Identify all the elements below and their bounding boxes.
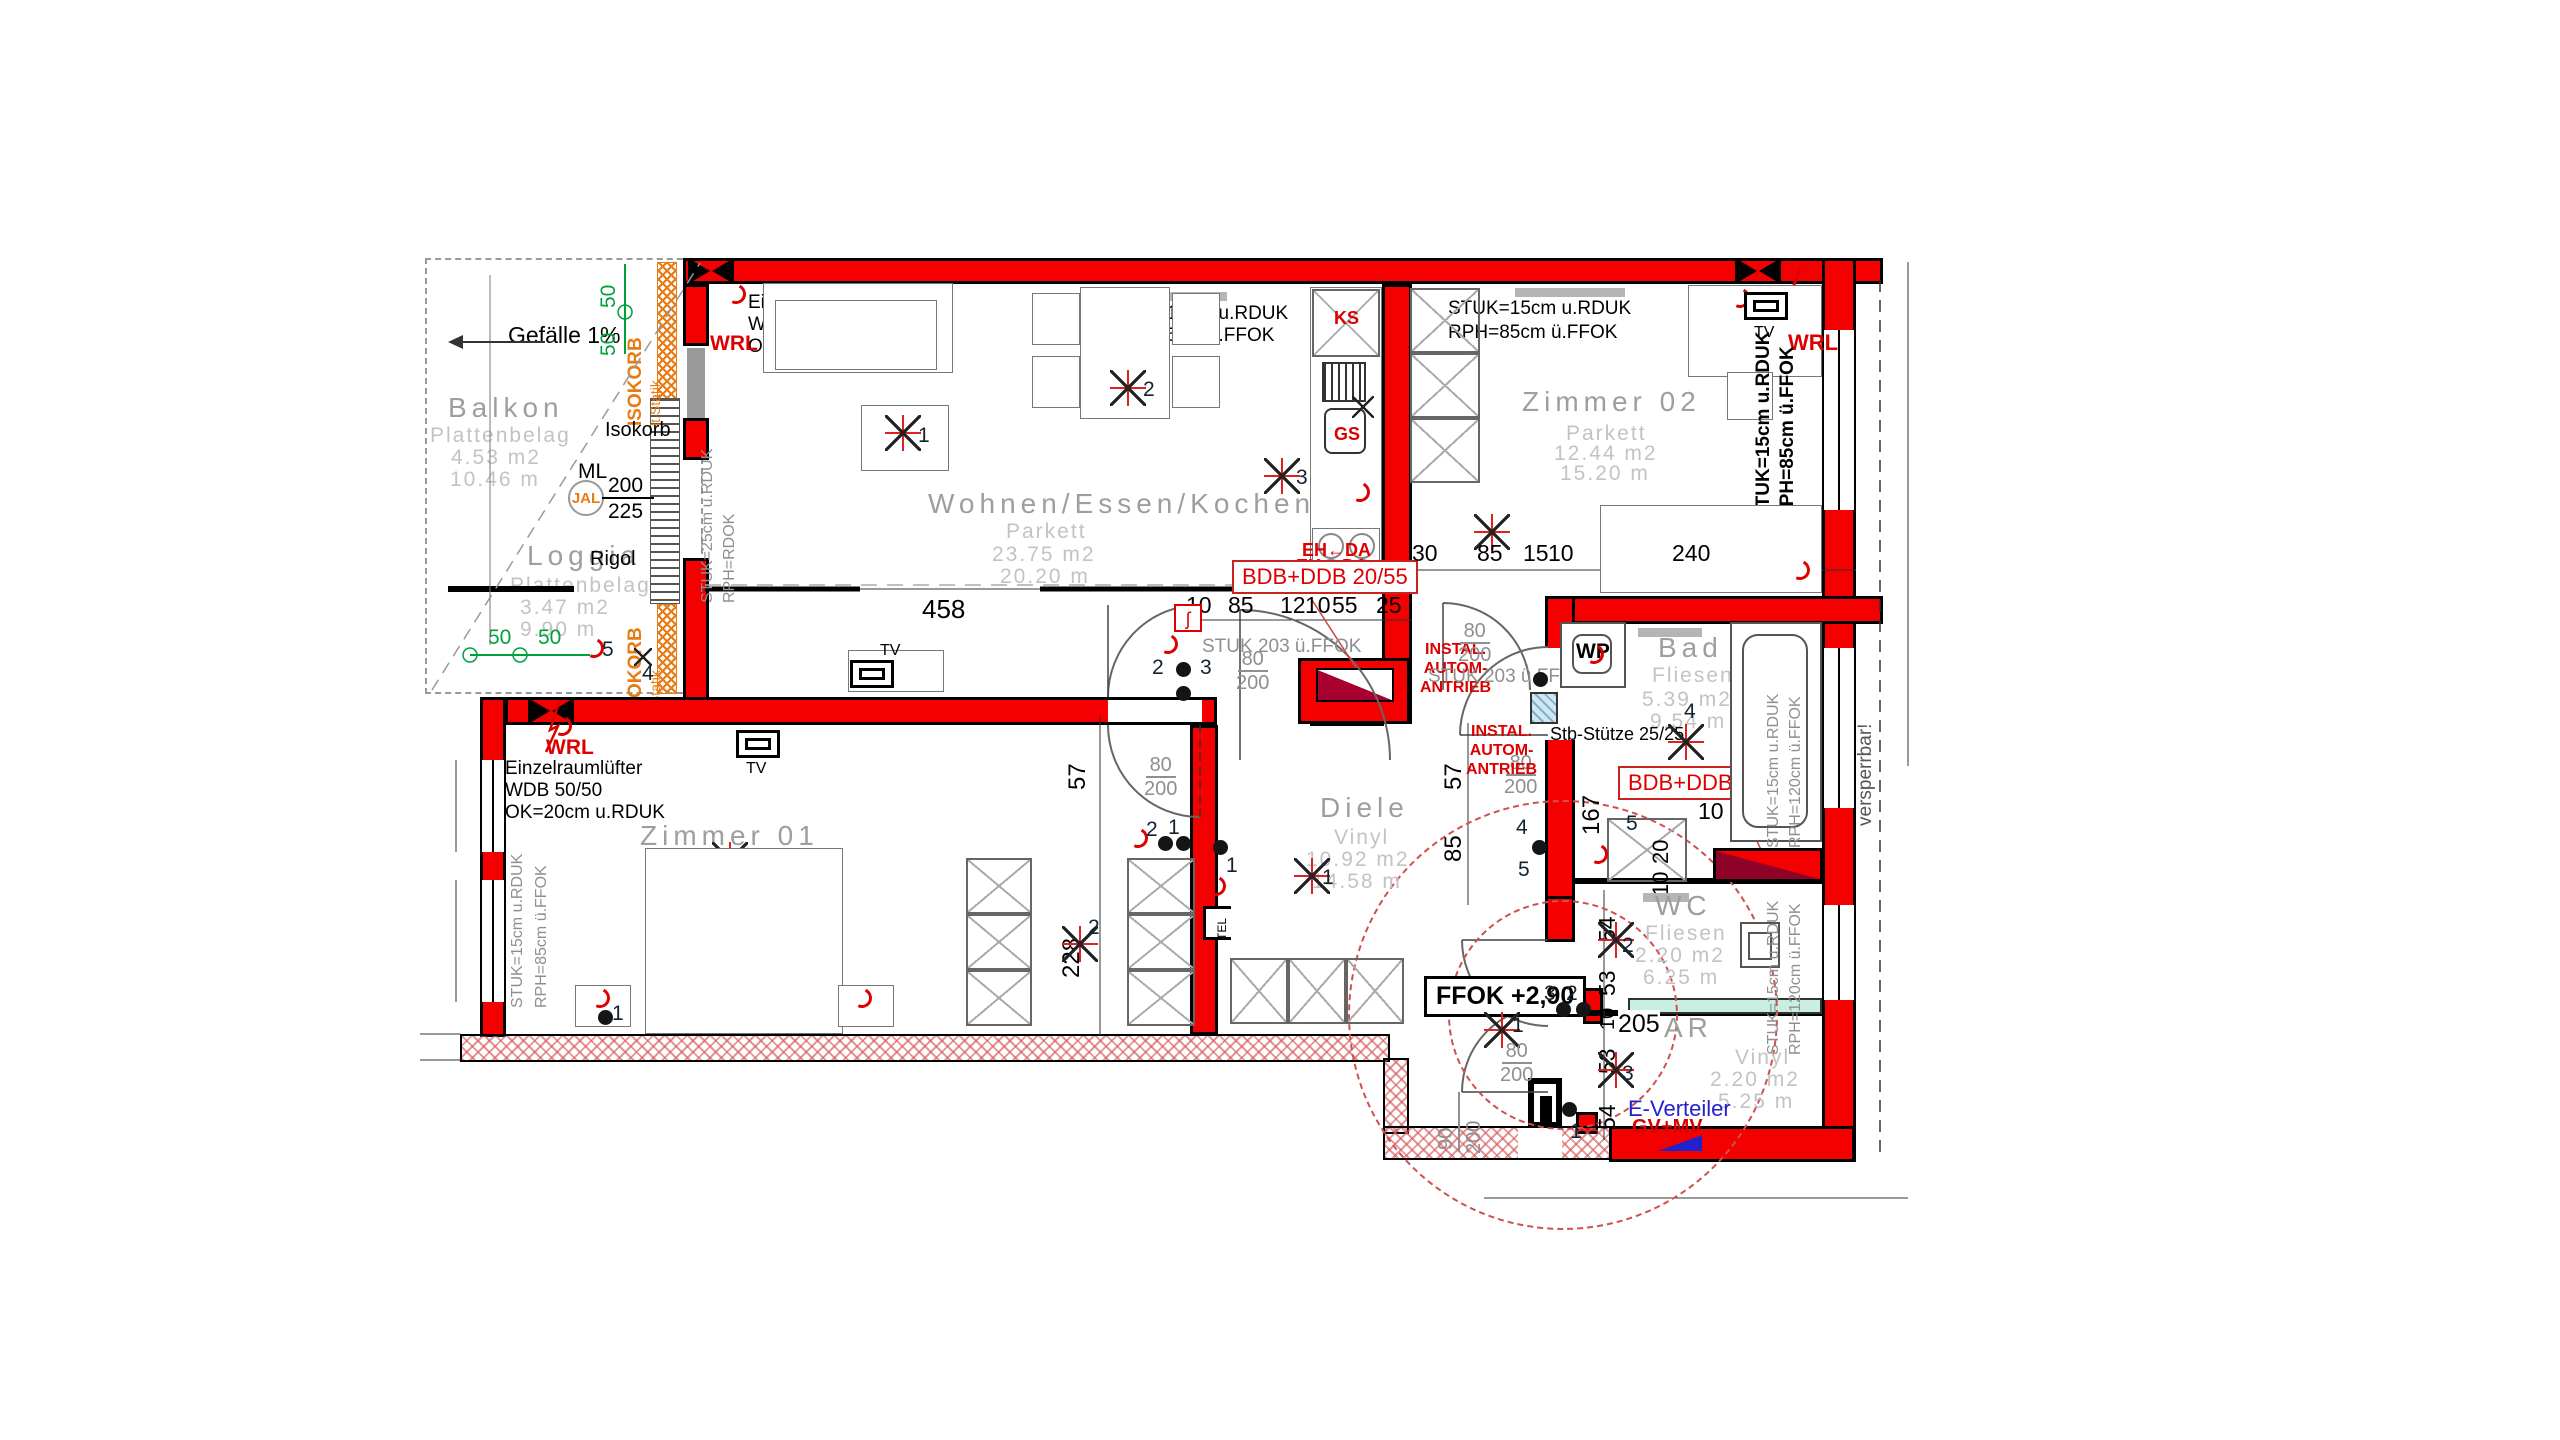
gv-mv-label: GV+MV <box>1632 1116 1703 1139</box>
ml-dim-under: 225 <box>608 500 643 524</box>
socket-diele-a <box>1176 662 1191 677</box>
dim-54-b: 54 <box>1596 1080 1619 1130</box>
living-floor: Parkett <box>1006 520 1087 544</box>
ar-floor: Vinyl <box>1735 1046 1790 1070</box>
entry-door-dim-200: 200 <box>1464 1090 1484 1154</box>
versperrbar-label: versperrbar! <box>1856 676 1875 826</box>
ar-name: AR <box>1664 1012 1713 1044</box>
light-num-dining-2: 2 <box>1143 378 1155 402</box>
wardrobe-z01-b3 <box>1127 970 1195 1026</box>
light-living-1 <box>885 415 921 451</box>
window-zimmer01-b <box>480 880 506 1002</box>
wall-top <box>683 258 1883 284</box>
dim-167: 167 <box>1580 745 1604 835</box>
wardrobe-diele-1 <box>1230 958 1288 1024</box>
tv-icon-living <box>850 660 894 688</box>
z02-name: Zimmer 02 <box>1522 386 1701 418</box>
socket-num-1-entry: 1 <box>1570 1120 1582 1144</box>
socket-num-2-z01: 2 <box>1146 818 1158 842</box>
door-dim-living: 80200 <box>1236 648 1269 694</box>
wardrobe-z02-2 <box>1410 353 1480 418</box>
light-num-shower-5: 5 <box>1626 812 1638 836</box>
light-num-bad-4: 4 <box>1684 700 1696 724</box>
dim-25: 25 <box>1376 592 1402 619</box>
wc-floor: Fliesen <box>1645 922 1727 946</box>
kitchen-south-line <box>1310 722 1384 726</box>
stuk25-label: STUK=25cm u.RDUK <box>700 428 716 603</box>
socket-num-3-diele: 3 <box>1200 656 1212 680</box>
tv-icon-z02 <box>1744 292 1788 320</box>
rigol-label: Rigol <box>590 548 636 571</box>
bdb55-box: BDB+DDB 20/55 <box>1232 560 1418 594</box>
switch-icon-diele-top <box>1155 631 1181 657</box>
ml-fraction-line <box>602 497 654 499</box>
balkon-perimeter: 10.46 m <box>450 468 540 492</box>
socket-hall-a <box>1533 672 1548 687</box>
dishwasher-label: GS <box>1334 424 1360 445</box>
door-gap-entry <box>1518 1128 1562 1158</box>
wall-left-living-a <box>683 284 709 346</box>
light-num-entry-1: 1 <box>1512 1014 1524 1038</box>
isokorb-label-top: ISOKORB <box>626 266 645 426</box>
dim-85-hall: 85 <box>1442 802 1466 862</box>
living-perimeter: 20.20 m <box>1000 565 1090 589</box>
wc-name: WC <box>1655 890 1712 922</box>
dim-55: 55 <box>1332 592 1358 619</box>
diele-name: Diele <box>1320 792 1409 824</box>
wardrobe-z01-b1 <box>1127 858 1195 914</box>
door-dim-z02: 80200 <box>1458 620 1491 666</box>
light-num-z01-2: 2 <box>1088 916 1100 940</box>
tel-label: TEL <box>1216 908 1228 940</box>
jal-circle: JAL <box>568 480 604 516</box>
wardrobe-z01-a1 <box>966 858 1032 914</box>
light-dining-2 <box>1110 370 1146 406</box>
z02-right-note-b: RPH=85cm ü.FFOK <box>1778 360 1797 520</box>
socket-num-1-diele-wall: 1 <box>1226 854 1238 878</box>
z02-perimeter: 15.20 m <box>1560 462 1650 486</box>
socket-nightstand <box>598 1010 613 1025</box>
glass-block <box>1530 692 1558 724</box>
light-num-diele-1: 1 <box>1322 866 1334 890</box>
chair-2 <box>1172 356 1220 408</box>
wall-wc-pier <box>1545 896 1575 942</box>
entry-door-dim-90: 90 <box>1436 1090 1456 1150</box>
socket-diele-wall <box>1213 840 1228 855</box>
wardrobe-z02-1 <box>1410 288 1480 353</box>
dim-85-b: 85 <box>1477 540 1503 567</box>
wall-existing-entry-vert <box>1383 1058 1409 1134</box>
bed-z02 <box>1600 505 1822 593</box>
wc-perimeter: 6.25 m <box>1643 966 1719 990</box>
shower <box>1607 818 1687 882</box>
shaft-niche <box>1316 668 1394 702</box>
diele-floor: Vinyl <box>1334 826 1389 850</box>
vent-note-z01-title: Einzelraumlüfter <box>505 758 642 780</box>
dim-205: 205 <box>1618 1010 1660 1039</box>
wall-zimmer02-bad <box>1545 596 1883 624</box>
dim-50-bottom-a: 50 <box>488 626 511 650</box>
bad-right-note-b: RPH=120cm ü.FFOK <box>1788 688 1804 848</box>
entrance-door-leaf <box>1540 1096 1552 1122</box>
rph-rdok-label: RPH=RDOK <box>722 428 738 603</box>
z01-left-note-b: RPH=85cm ü.FFOK <box>534 828 550 1008</box>
wc-right-note-a: STUK=15cm u.RDUK <box>1766 900 1782 1055</box>
socket-num-4-balkon: 4 <box>642 662 654 686</box>
balkon-floor: Plattenbelag <box>430 424 571 448</box>
wrl-vent-element <box>687 348 705 418</box>
vent-note-z01-l1: WDB 50/50 <box>505 780 602 802</box>
door-dim-wc: 80200 <box>1500 1040 1533 1086</box>
ar-area: 2.20 m2 <box>1710 1068 1800 1092</box>
wardrobe-diele-2 <box>1288 958 1346 1024</box>
isokorb-bowtie-right <box>1735 258 1781 284</box>
stuk203-a: STUK 203 ü.FFOK <box>1202 636 1361 658</box>
dim-57-z01: 57 <box>1066 730 1090 790</box>
living-area: 23.75 m2 <box>992 543 1096 567</box>
window-bad <box>1822 648 1856 808</box>
window-zimmer02 <box>1822 330 1856 510</box>
entry-door-dim-line <box>1458 1092 1460 1152</box>
faucet-icon <box>1352 396 1374 418</box>
dim-10-bad: 10 <box>1698 798 1724 825</box>
wardrobe-diele-3 <box>1346 958 1404 1024</box>
light-living-3 <box>1264 458 1300 494</box>
socket-hall-b <box>1532 840 1547 855</box>
socket-diele-b <box>1176 686 1191 701</box>
wardrobe-z01-b2 <box>1127 914 1195 970</box>
dim-50-top-a: 50 <box>598 264 619 308</box>
socket-num-2-entry: 2 <box>1566 982 1578 1006</box>
socket-num-2-diele: 2 <box>1152 656 1164 680</box>
wrl-label-living: WRL <box>710 332 758 356</box>
dim-10-c: 10 <box>1548 540 1574 567</box>
socket-num-1-z01: 1 <box>1168 816 1180 840</box>
statik-label-top: lt.Statik <box>648 266 662 426</box>
light-bad-4 <box>1668 724 1704 760</box>
wc-right-note-b: RPH=120cm ü.FFOK <box>1788 900 1804 1055</box>
dim-240: 240 <box>1672 540 1710 567</box>
bad-name: Bad <box>1658 632 1723 664</box>
tv-label-living: TV <box>880 642 900 660</box>
dim-15: 15 <box>1523 540 1549 567</box>
living-name: Wohnen/Essen/Kochen <box>928 488 1315 520</box>
window-zimmer01-a <box>480 760 506 852</box>
switch-icon-living-corner <box>723 281 749 307</box>
sideboard-b <box>775 300 937 370</box>
dim-12: 12 <box>1280 592 1306 619</box>
dim-10-wc: 10 <box>1598 994 1618 1030</box>
bad-right-note-a: STUK=15cm u.RDUK <box>1766 688 1782 848</box>
tv-label-z01: TV <box>746 760 766 778</box>
dim-20: 20 <box>1650 834 1672 864</box>
socket-num-5-hall: 5 <box>1518 858 1530 882</box>
tv-icon-z01 <box>736 730 780 758</box>
wall-existing-south <box>460 1034 1390 1062</box>
dim-30: 30 <box>1412 540 1438 567</box>
balkon-name: Balkon <box>448 392 564 424</box>
dim-10-b: 10 <box>1305 592 1331 619</box>
shower-wall-band <box>1713 848 1823 882</box>
wrl-label-z01: WRL <box>546 736 594 760</box>
bad-floor: Fliesen <box>1652 664 1734 688</box>
instal-note-2: INSTAL.AUTOM-ANTRIEB <box>1466 722 1537 780</box>
junction-box: ʃ <box>1174 604 1202 632</box>
z02-right-note-a: STUK=15cm u.RDUK <box>1754 360 1773 520</box>
ml-dim-over: 200 <box>608 474 643 498</box>
linework-overlay <box>0 0 2560 1440</box>
sill-bar-z02 <box>1515 288 1625 297</box>
loggia-area: 3.47 m2 <box>520 596 610 620</box>
z01-left-note-a: STUK=15cm u.RDUK <box>510 828 526 1008</box>
dim-458: 458 <box>922 594 965 625</box>
socket-num-3-entry: 3 <box>1544 982 1556 1006</box>
socket-entry-c <box>1562 1102 1577 1117</box>
door-gap-zimmer01 <box>1108 700 1202 722</box>
dim-85-a: 85 <box>1228 592 1254 619</box>
light-num-living-1: 1 <box>918 424 930 448</box>
balkon-area: 4.53 m2 <box>451 446 541 470</box>
dim-57-hall: 57 <box>1442 730 1466 790</box>
dim-50-top-b: 50 <box>598 312 619 356</box>
wardrobe-z01-a2 <box>966 914 1032 970</box>
light-num-living-3: 3 <box>1296 466 1308 490</box>
socket-num-1-nightstand: 1 <box>612 1002 624 1026</box>
dim-53-a: 53 <box>1596 950 1619 996</box>
wardrobe-z02-3 <box>1410 418 1480 483</box>
fridge-label: KS <box>1334 308 1359 329</box>
eh-da-arrow-label: EH←DA <box>1302 540 1371 561</box>
door-dim-z01: 80200 <box>1144 754 1177 800</box>
jal-label: JAL <box>572 490 600 507</box>
bed-z01 <box>645 848 843 1034</box>
socket-entry-b <box>1576 1002 1591 1017</box>
light-num-wc-2: 2 <box>1622 934 1634 958</box>
light-num-ar-3: 3 <box>1622 1062 1634 1086</box>
wc-area: 2.20 m2 <box>1635 944 1725 968</box>
loggia-divider <box>448 586 574 592</box>
window-wc <box>1822 905 1856 1000</box>
chair-4 <box>1032 356 1080 408</box>
isokorb-small-label: Isokorb <box>605 419 671 442</box>
isokorb-bowtie-left <box>688 258 734 284</box>
socket-num-4-hall: 4 <box>1516 816 1528 840</box>
chair-1 <box>1172 293 1220 345</box>
chair-3 <box>1032 293 1080 345</box>
wardrobe-z01-a3 <box>966 970 1032 1026</box>
dim-50-bottom-b: 50 <box>538 626 561 650</box>
stb-stuetze-label: Stb-Stütze 25/25 <box>1550 724 1684 745</box>
